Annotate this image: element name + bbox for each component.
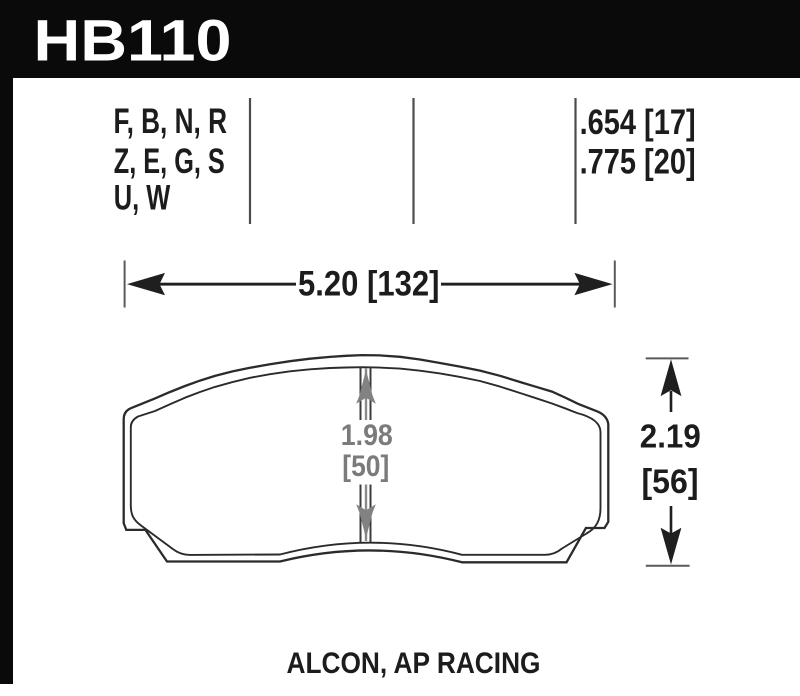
- svg-text:Z, E, G, S: Z, E, G, S: [114, 141, 225, 181]
- svg-text:1.98: 1.98: [341, 419, 393, 452]
- svg-text:2.19: 2.19: [640, 419, 701, 456]
- svg-text:F, B, N, R: F, B, N, R: [114, 101, 228, 141]
- svg-text:5.20 [132]: 5.20 [132]: [298, 263, 440, 303]
- svg-text:U, W: U, W: [114, 178, 171, 218]
- svg-text:[50]: [50]: [342, 450, 389, 483]
- svg-text:ALCON, AP RACING: ALCON, AP RACING: [287, 647, 541, 680]
- svg-text:[56]: [56]: [642, 463, 699, 501]
- svg-text:.775 [20]: .775 [20]: [580, 141, 696, 181]
- svg-text:HB110: HB110: [34, 8, 232, 73]
- svg-text:.654 [17]: .654 [17]: [580, 102, 696, 142]
